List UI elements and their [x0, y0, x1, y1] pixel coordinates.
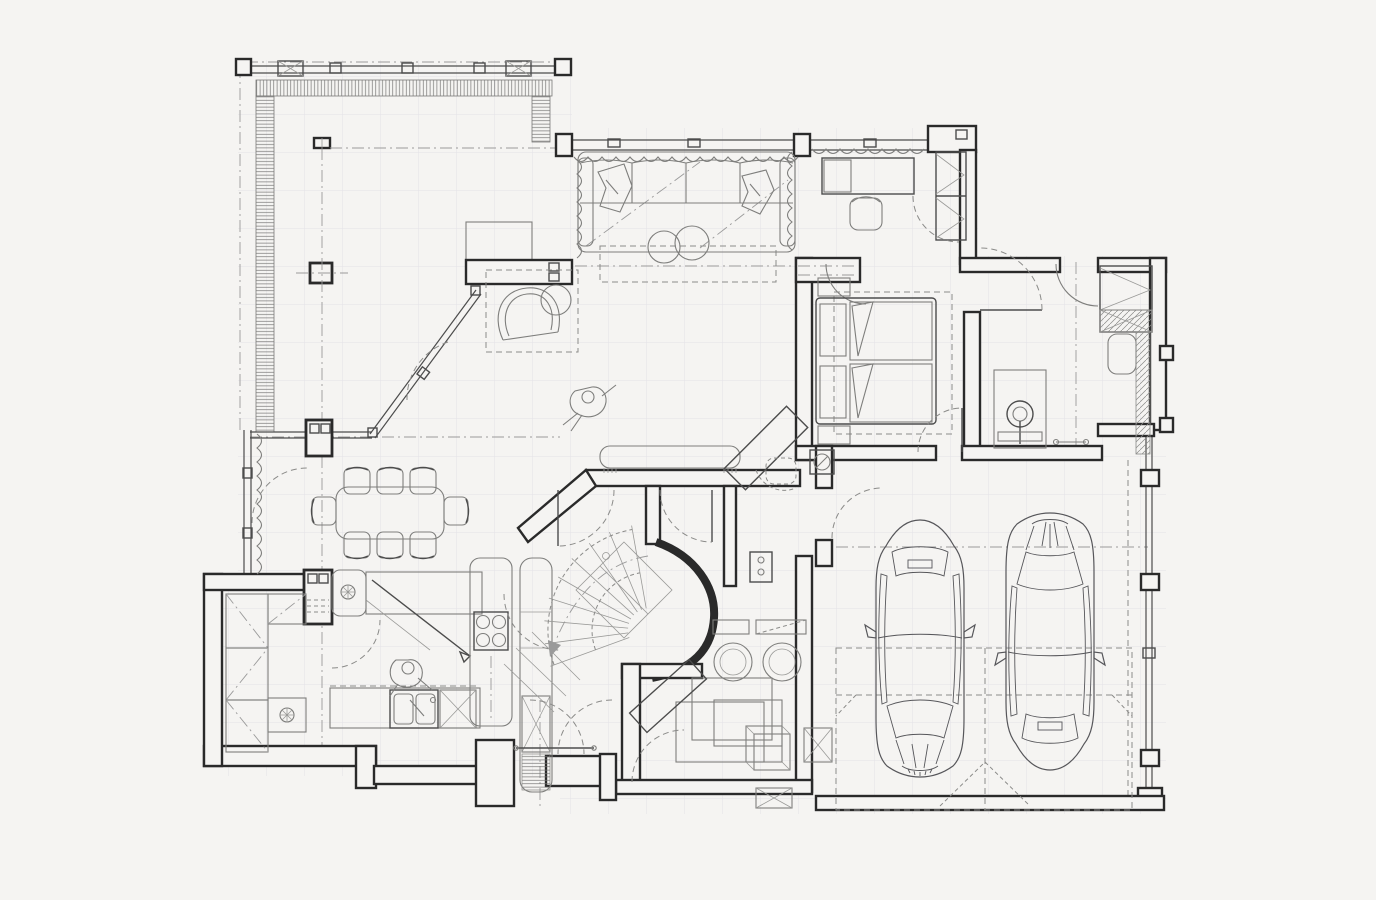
deck-hatch-band-right — [532, 96, 550, 142]
floor-plan-page — [0, 0, 1376, 900]
tall-cabinet-column — [304, 570, 332, 624]
garage-pier — [1141, 750, 1159, 766]
garage-pier — [1141, 470, 1159, 486]
sliding-panel-hatch — [1136, 332, 1150, 454]
deck-post — [555, 59, 571, 75]
deck-hatch-band-top — [256, 80, 552, 96]
garage-pier — [1141, 574, 1159, 590]
deck-hatch-band-left — [256, 96, 274, 432]
burner-symbol — [341, 585, 355, 599]
floor-plan-canvas — [0, 0, 1376, 900]
deck-post — [236, 59, 251, 75]
